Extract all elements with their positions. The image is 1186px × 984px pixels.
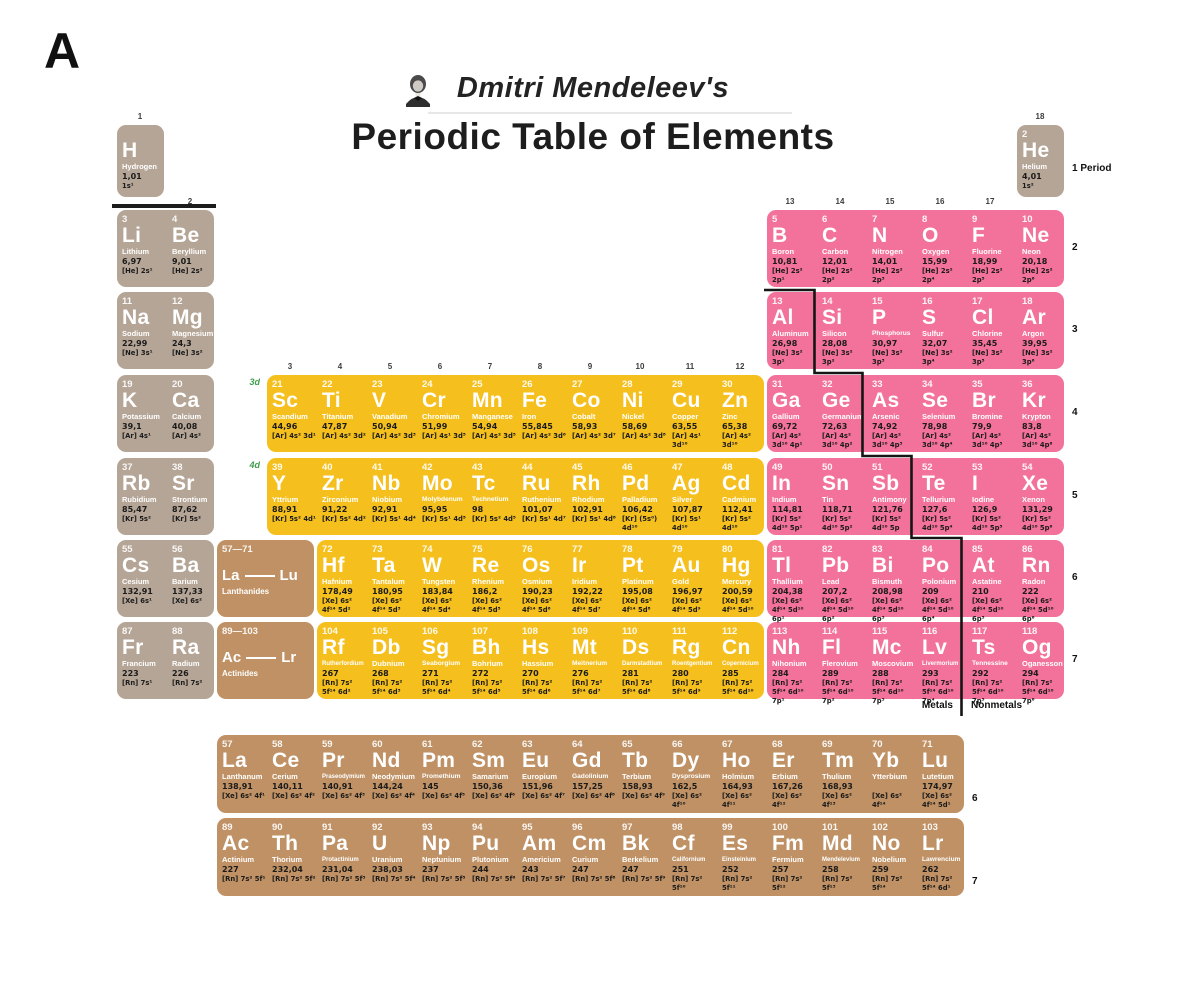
element-cell-p: 15PPhosphorus30,97[Ne] 3s² 3p³ xyxy=(865,292,915,369)
atomic-mass: 1,01 xyxy=(122,172,165,182)
element-symbol: Hf xyxy=(322,555,365,577)
atomic-mass: 252 xyxy=(722,865,765,875)
element-symbol: Rh xyxy=(572,473,615,495)
element-cell-fm: 100FmFermium257[Rn] 7s² 5f¹² xyxy=(765,818,815,895)
element-symbol: As xyxy=(872,390,915,412)
electron-config: [Xe] 6s² 4f¹⁴ 5d¹⁰ 6p⁶ xyxy=(1022,597,1066,624)
atomic-mass: 247 xyxy=(622,865,665,875)
element-symbol: Tb xyxy=(622,750,665,772)
atomic-mass: 285 xyxy=(722,669,765,679)
electron-config: [Xe] 6s² 4f² xyxy=(272,792,316,801)
nonmetals-label: Nonmetals xyxy=(971,700,1022,711)
element-cell-sb: 51SbAntimony121,76[Kr] 5s² 4d¹⁰ 5p xyxy=(865,458,915,535)
element-cell-tm: 69TmThulium168,93[Xe] 6s² 4f¹³ xyxy=(815,735,865,812)
electron-config: [Xe] 6s² 4f¹⁴ 5d⁷ xyxy=(572,597,616,615)
group-label-6: 6 xyxy=(415,362,465,371)
atomic-mass: 209 xyxy=(922,587,965,597)
element-name: Boron xyxy=(772,247,815,257)
element-symbol: Dy xyxy=(672,750,715,772)
element-symbol: At xyxy=(972,555,1015,577)
element-symbol: Ir xyxy=(572,555,615,577)
element-symbol: Cm xyxy=(572,833,615,855)
element-name: Tennessine xyxy=(972,659,1015,669)
element-name: Rubidium xyxy=(122,495,165,505)
element-cell-ne: 10NeNeon20,18[He] 2s² 2p⁶ xyxy=(1015,210,1065,287)
atomic-mass: 87,62 xyxy=(172,505,215,515)
element-symbol: H xyxy=(122,140,165,162)
atomic-mass: 39,1 xyxy=(122,422,165,432)
element-name: Moscovium xyxy=(872,659,915,669)
series-placeholder-actinides: 89—103AcLrActinides xyxy=(215,622,315,699)
electron-config: [Rn] 7s² 5f¹⁴ 6d¹⁰ 7p⁶ xyxy=(1022,679,1066,706)
atomic-mass: 98 xyxy=(472,505,515,515)
element-symbol: Er xyxy=(772,750,815,772)
element-symbol: Nd xyxy=(372,750,415,772)
atomic-mass: 28,08 xyxy=(822,339,865,349)
electron-config: [Xe] 6s² 4f¹⁴ 5d¹⁰ xyxy=(722,597,766,615)
element-cell-ni: 28NiNickel58,69[Ar] 4s² 3d⁸ xyxy=(615,375,665,452)
electron-config: [Kr] 5s² 4d¹⁰ 5p⁵ xyxy=(972,515,1016,533)
atomic-mass: 243 xyxy=(522,865,565,875)
element-cell-b: 5BBoron10,81[He] 2s² 2p¹ xyxy=(765,210,815,287)
element-name: Ytterbium xyxy=(872,772,915,782)
element-name: Oganesson xyxy=(1022,659,1065,669)
element-cell-ru: 44RuRuthenium101,07[Kr] 5s¹ 4d⁷ xyxy=(515,458,565,535)
element-name: Scandium xyxy=(272,412,315,422)
element-name: Dubnium xyxy=(372,659,415,669)
element-cell-ga: 31GaGallium69,72[Ar] 4s² 3d¹⁰ 4p¹ xyxy=(765,375,815,452)
electron-config: [Ne] 3s² 3p² xyxy=(822,349,866,367)
element-name: Calcium xyxy=(172,412,215,422)
atomic-mass: 63,55 xyxy=(672,422,715,432)
electron-config: [Rn] 7s² 5f¹² xyxy=(772,875,816,893)
atomic-mass: 20,18 xyxy=(1022,257,1065,267)
electron-config: [Xe] 6s² 4f¹¹ xyxy=(722,792,766,810)
element-name: Lawrencium xyxy=(922,855,965,865)
group-label-8: 8 xyxy=(515,362,565,371)
electron-config: [Rn] 7s² 5f¹⁴ 6d⁷ xyxy=(572,679,616,697)
element-name: Lead xyxy=(822,577,865,587)
group-label-7: 7 xyxy=(465,362,515,371)
atomic-mass: 126,9 xyxy=(972,505,1015,515)
element-symbol: Db xyxy=(372,637,415,659)
element-name: Sulfur xyxy=(922,329,965,339)
series-range: 89—103 xyxy=(222,626,315,637)
element-name: Radium xyxy=(172,659,215,669)
element-name: Astatine xyxy=(972,577,1015,587)
group-label-4: 4 xyxy=(315,362,365,371)
group-label-15: 15 xyxy=(865,197,915,206)
element-cell-v: 23VVanadium50,94[Ar] 4s² 3d³ xyxy=(365,375,415,452)
atomic-mass: 190,23 xyxy=(522,587,565,597)
atomic-mass: 167,26 xyxy=(772,782,815,792)
element-cell-xe: 54XeXenon131,29[Kr] 5s² 4d¹⁰ 5p⁶ xyxy=(1015,458,1065,535)
element-symbol: Te xyxy=(922,473,965,495)
element-symbol: Lu xyxy=(922,750,965,772)
atomic-mass: 39,95 xyxy=(1022,339,1065,349)
element-name: Tellurium xyxy=(922,495,965,505)
element-symbol: Be xyxy=(172,225,215,247)
element-name: Protactinium xyxy=(322,855,365,865)
atomic-mass: 14,01 xyxy=(872,257,915,267)
element-name: Iridium xyxy=(572,577,615,587)
atomic-mass: 200,59 xyxy=(722,587,765,597)
lanthanide-row-period-label: 6 xyxy=(972,793,978,804)
atomic-mass: 195,08 xyxy=(622,587,665,597)
element-cell-se: 34SeSelenium78,98[Ar] 4s² 3d¹⁰ 4p⁴ xyxy=(915,375,965,452)
electron-config: [Xe] 6s² 4f¹² xyxy=(772,792,816,810)
element-cell-rn: 86RnRadon222[Xe] 6s² 4f¹⁴ 5d¹⁰ 6p⁶ xyxy=(1015,540,1065,617)
electron-config: [Kr] 5s² 4d² xyxy=(322,515,366,524)
element-name: Francium xyxy=(122,659,165,669)
period-label-2: 2 xyxy=(1072,242,1078,253)
electron-config: [Ar] 4s² 3d² xyxy=(322,432,366,441)
element-symbol: Lv xyxy=(922,637,965,659)
element-name: Lanthanum xyxy=(222,772,265,782)
element-symbol: U xyxy=(372,833,415,855)
element-symbol: Tm xyxy=(822,750,865,772)
element-symbol: Pu xyxy=(472,833,515,855)
element-name: Thulium xyxy=(822,772,865,782)
atomic-mass: 26,98 xyxy=(772,339,815,349)
element-name: Thallium xyxy=(772,577,815,587)
series-symbols: LaLu xyxy=(222,567,315,584)
element-symbol: Mc xyxy=(872,637,915,659)
electron-config: [Rn] 7s² 5f¹⁴ 6d⁶ xyxy=(522,679,566,697)
element-name: Einsteinium xyxy=(722,855,765,865)
element-name: Americium xyxy=(522,855,565,865)
atomic-mass xyxy=(872,782,915,792)
electron-config: [Ar] 4s¹ 3d⁵ xyxy=(422,432,466,441)
element-symbol: Pr xyxy=(322,750,365,772)
element-cell-n: 7NNitrogen14,01[He] 2s² 2p³ xyxy=(865,210,915,287)
element-symbol: Co xyxy=(572,390,615,412)
atomic-mass: 180,95 xyxy=(372,587,415,597)
element-name: Meitnerium xyxy=(572,659,615,669)
atomic-mass: 131,29 xyxy=(1022,505,1065,515)
element-name: Antimony xyxy=(872,495,915,505)
element-symbol: Sb xyxy=(872,473,915,495)
electron-config: [Rn] 7s² 5f¹⁴ 6d¹⁰ 7p¹ xyxy=(772,679,816,706)
group-label-1: 1 xyxy=(115,112,165,121)
electron-config: [Ar] 4s² 3d¹⁰ 4p⁴ xyxy=(922,432,966,450)
series-to: Lr xyxy=(281,649,296,666)
electron-config: [Ne] 3s² xyxy=(172,349,216,358)
element-symbol: Ta xyxy=(372,555,415,577)
actinide-row-period-label: 7 xyxy=(972,876,978,887)
electron-config: [Rn] 7s¹ xyxy=(122,679,166,688)
element-cell-cd: 48CdCadmium112,41[Kr] 5s² 4d¹⁰ xyxy=(715,458,765,535)
electron-config: [He] 2s² 2p¹ xyxy=(772,267,816,285)
atomic-mass: 79,9 xyxy=(972,422,1015,432)
period-label-1: 1 Period xyxy=(1072,163,1111,174)
electron-config: [Xe] 6s² 4f¹⁰ xyxy=(672,792,716,810)
element-name: Copernicium xyxy=(722,659,765,669)
atomic-mass: 74,92 xyxy=(872,422,915,432)
atomic-mass: 150,36 xyxy=(472,782,515,792)
period-label-3: 3 xyxy=(1072,324,1078,335)
element-cell-ds: 110DsDarmstadtium281[Rn] 7s² 5f¹⁴ 6d⁸ xyxy=(615,622,665,699)
element-name: Nitrogen xyxy=(872,247,915,257)
atomic-mass: 127,6 xyxy=(922,505,965,515)
element-cell-au: 79AuGold196,97[Xe] 6s² 4f¹⁴ 5d⁹ xyxy=(665,540,715,617)
atomic-mass: 284 xyxy=(772,669,815,679)
element-name: Yttrium xyxy=(272,495,315,505)
electron-config: 1s² xyxy=(1022,182,1066,191)
atomic-mass: 294 xyxy=(1022,669,1065,679)
element-name: Phosphorus xyxy=(872,329,915,339)
element-name: Sodium xyxy=(122,329,165,339)
atomic-mass: 244 xyxy=(472,865,515,875)
electron-config: [Rn] 7s² 5f¹⁴ 6d⁴ xyxy=(422,679,466,697)
element-cell-zn: 30ZnZinc65,38[Ar] 4s² 3d¹⁰ xyxy=(715,375,765,452)
element-name: Cerium xyxy=(272,772,315,782)
element-symbol: La xyxy=(222,750,265,772)
electron-config: [Rn] 7s² 5f¹³ xyxy=(822,875,866,893)
electron-config: [Ar] 4s² 3d¹⁰ 4p⁵ xyxy=(972,432,1016,450)
atomic-number: 53 xyxy=(972,462,1015,473)
electron-config: [Rn] 7s² 5f¹⁴ 6d⁵ xyxy=(472,679,516,697)
element-name: Thorium xyxy=(272,855,315,865)
element-name: Iron xyxy=(522,412,565,422)
element-cell-hs: 108HsHassium270[Rn] 7s² 5f¹⁴ 6d⁶ xyxy=(515,622,565,699)
element-cell-fl: 114FlFlerovium289[Rn] 7s² 5f¹⁴ 6d¹⁰ 7p² xyxy=(815,622,865,699)
element-name: Nihonium xyxy=(772,659,815,669)
element-cell-cn: 112CnCopernicium285[Rn] 7s² 5f¹⁴ 6d¹⁰ xyxy=(715,622,765,699)
subshell-annotation-3d: 3d xyxy=(240,377,260,387)
element-cell-re: 75ReRhenium186,2[Xe] 6s² 4f¹⁴ 5d⁵ xyxy=(465,540,515,617)
element-cell-rf: 104RfRutherfordium267[Rn] 7s² 5f¹⁴ 6d² xyxy=(315,622,365,699)
electron-config: [Ne] 3s² 3p⁵ xyxy=(972,349,1016,367)
series-label: Actinides xyxy=(222,669,315,678)
electron-config: [Xe] 6s² 4f¹⁴ 5d⁵ xyxy=(472,597,516,615)
element-symbol: S xyxy=(922,307,965,329)
electron-config: [Ne] 3s¹ xyxy=(122,349,166,358)
element-cell-nd: 60NdNeodymium144,24[Xe] 6s² 4f⁴ xyxy=(365,735,415,812)
element-symbol: Sn xyxy=(822,473,865,495)
atomic-mass: 280 xyxy=(672,669,715,679)
element-symbol: Ge xyxy=(822,390,865,412)
atomic-mass: 137,33 xyxy=(172,587,215,597)
element-cell-be: 4BeBeryllium9,01[He] 2s² xyxy=(165,210,215,287)
element-cell-cl: 17ClChlorine35,45[Ne] 3s² 3p⁵ xyxy=(965,292,1015,369)
element-symbol: Fl xyxy=(822,637,865,659)
element-symbol: Yb xyxy=(872,750,915,772)
electron-config: [Ar] 4s² 3d¹⁰ 4p¹ xyxy=(772,432,816,450)
element-symbol: Fr xyxy=(122,637,165,659)
electron-config: [Xe] 6s² 4f¹⁴ 5d⁹ xyxy=(672,597,716,615)
element-name: Zinc xyxy=(722,412,765,422)
electron-config: [Ar] 4s² 3d⁵ xyxy=(472,432,516,441)
electron-config: [Xe] 6s² 4f¹⁴ 5d⁴ xyxy=(422,597,466,615)
metals-label: Metals xyxy=(860,700,953,711)
element-name: Argon xyxy=(1022,329,1065,339)
element-name: Beryllium xyxy=(172,247,215,257)
element-name: Radon xyxy=(1022,577,1065,587)
electron-config: [Ar] 4s² 3d⁶ xyxy=(522,432,566,441)
electron-config: [Ne] 3s² 3p³ xyxy=(872,349,916,367)
element-cell-bk: 97BkBerkelium247[Rn] 7s² 5f⁹ xyxy=(615,818,665,895)
electron-config: [Xe] 6s² 4f¹⁴ 5d¹⁰ 6p¹ xyxy=(772,597,816,624)
element-symbol: Bh xyxy=(472,637,515,659)
group-label-3: 3 xyxy=(265,362,315,371)
electron-config: [Ar] 4s² xyxy=(172,432,216,441)
electron-config: [Rn] 7s² 5f¹¹ xyxy=(722,875,766,893)
element-cell-pt: 78PtPlatinum195,08[Xe] 6s² 4f¹⁴ 5d⁸ xyxy=(615,540,665,617)
atomic-mass: 196,97 xyxy=(672,587,715,597)
element-name: Carbon xyxy=(822,247,865,257)
atomic-mass: 262 xyxy=(922,865,965,875)
group-label-16: 16 xyxy=(915,197,965,206)
element-cell-ag: 47AgSilver107,87[Kr] 5s¹ 4d¹⁰ xyxy=(665,458,715,535)
element-symbol: Es xyxy=(722,833,765,855)
element-cell-tb: 65TbTerbium158,93[Xe] 6s² 4f⁹ xyxy=(615,735,665,812)
element-name: Plutonium xyxy=(472,855,515,865)
element-symbol: Rf xyxy=(322,637,365,659)
series-from: La xyxy=(222,567,240,584)
element-name: Strontium xyxy=(172,495,215,505)
electron-config: [Kr] 5s² 4d¹⁰ 5p¹ xyxy=(772,515,816,533)
atomic-mass: 106,42 xyxy=(622,505,665,515)
element-symbol: Mt xyxy=(572,637,615,659)
atomic-mass: 271 xyxy=(422,669,465,679)
poster-byline: Dmitri Mendeleev's xyxy=(0,72,1186,105)
element-cell-ca: 20CaCalcium40,08[Ar] 4s² xyxy=(165,375,215,452)
element-cell-sr: 38SrStrontium87,62[Kr] 5s² xyxy=(165,458,215,535)
atomic-mass: 232,04 xyxy=(272,865,315,875)
element-cell-he: 2HeHelium4,011s² xyxy=(1015,125,1065,202)
element-symbol: Rb xyxy=(122,473,165,495)
element-cell-rg: 111RgRoentgentium280[Rn] 7s² 5f¹⁴ 6d⁹ xyxy=(665,622,715,699)
atomic-mass: 132,91 xyxy=(122,587,165,597)
electron-config: [Ar] 4s² 3d¹ xyxy=(272,432,316,441)
period-label-7: 7 xyxy=(1072,654,1078,665)
element-symbol: Ce xyxy=(272,750,315,772)
atomic-mass: 15,99 xyxy=(922,257,965,267)
electron-config: [Kr] 5s² 4d¹ xyxy=(272,515,316,524)
electron-config: [Kr] 5s² xyxy=(172,515,216,524)
element-cell-ta: 73TaTantalum180,95[Xe] 6s² 4f¹⁴ 5d³ xyxy=(365,540,415,617)
element-cell-db: 105DbDubnium268[Rn] 7s² 5f¹⁴ 6d³ xyxy=(365,622,415,699)
element-symbol: Pt xyxy=(622,555,665,577)
element-cell-tc: 43TcTechnetium98[Kr] 5s² 4d⁵ xyxy=(465,458,515,535)
electron-config: [Kr] (5s⁰) 4d¹⁰ xyxy=(622,515,666,533)
electron-config: [Ne] 3s² 3p¹ xyxy=(772,349,816,367)
element-cell-po: 84PoPolonium209[Xe] 6s² 4f¹⁴ 5d¹⁰ 6p⁴ xyxy=(915,540,965,617)
electron-config: [Xe] 6s² 4f¹⁴ xyxy=(872,792,916,810)
element-cell-pr: 59PrPraseodymium140,91[Xe] 6s² 4f³ xyxy=(315,735,365,812)
element-name: Terbium xyxy=(622,772,665,782)
element-symbol: Y xyxy=(272,473,315,495)
group-label-13: 13 xyxy=(765,197,815,206)
element-symbol: Zr xyxy=(322,473,365,495)
element-symbol: Ga xyxy=(772,390,815,412)
atomic-mass: 10,81 xyxy=(772,257,815,267)
electron-config: [Rn] 7s² 5f¹⁰ xyxy=(672,875,716,893)
element-symbol: Gd xyxy=(572,750,615,772)
element-cell-as: 33AsArsenic74,92[Ar] 4s² 3d¹⁰ 4p³ xyxy=(865,375,915,452)
element-name: Chromium xyxy=(422,412,465,422)
atomic-mass: 9,01 xyxy=(172,257,215,267)
element-name: Hafnium xyxy=(322,577,365,587)
electron-config: [Rn] 7s² 5f⁸ xyxy=(572,875,616,884)
atomic-mass: 121,76 xyxy=(872,505,915,515)
electron-config: 1s¹ xyxy=(122,182,166,191)
element-symbol: Fm xyxy=(772,833,815,855)
element-symbol: Ag xyxy=(672,473,715,495)
element-cell-ac: 89AcActinium227[Rn] 7s² 5f¹ xyxy=(215,818,265,895)
element-cell-rb: 37RbRubidium85,47[Kr] 5s² xyxy=(115,458,165,535)
element-cell-mo: 42MoMolybdenum95,95[Kr] 5s¹ 4d⁵ xyxy=(415,458,465,535)
period-label-5: 5 xyxy=(1072,490,1078,501)
element-symbol: P xyxy=(872,307,915,329)
element-symbol: Kr xyxy=(1022,390,1065,412)
electron-config: [Ar] 4s² 3d¹⁰ 4p⁶ xyxy=(1022,432,1066,450)
element-cell-ho: 67HoHolmium164,93[Xe] 6s² 4f¹¹ xyxy=(715,735,765,812)
element-cell-in: 49InIndium114,81[Kr] 5s² 4d¹⁰ 5p¹ xyxy=(765,458,815,535)
element-name: Erbium xyxy=(772,772,815,782)
atomic-mass: 186,2 xyxy=(472,587,515,597)
element-cell-cu: 29CuCopper63,55[Ar] 4s¹ 3d¹⁰ xyxy=(665,375,715,452)
element-name: Zirconium xyxy=(322,495,365,505)
atomic-mass: 78,98 xyxy=(922,422,965,432)
element-name: Hassium xyxy=(522,659,565,669)
electron-config: [He] 2s² 2p⁵ xyxy=(972,267,1016,285)
series-from: Ac xyxy=(222,649,241,666)
element-name: Lithium xyxy=(122,247,165,257)
element-symbol: F xyxy=(972,225,1015,247)
atomic-mass: 51,99 xyxy=(422,422,465,432)
electron-config: [Ar] 4s² 3d⁷ xyxy=(572,432,616,441)
atomic-mass: 85,47 xyxy=(122,505,165,515)
element-name: Rhodium xyxy=(572,495,615,505)
electron-config: [Rn] 7s² 5f⁴ xyxy=(372,875,416,884)
period-label-4: 4 xyxy=(1072,407,1078,418)
electron-config: [Xe] 6s² 4f³ xyxy=(322,792,366,801)
element-name: Tantalum xyxy=(372,577,415,587)
element-cell-lu: 71LuLutetium174,97[Xe] 6s² 4f¹⁴ 5d¹ xyxy=(915,735,965,812)
element-name: Gold xyxy=(672,577,715,587)
electron-config: [Kr] 5s² 4d⁵ xyxy=(472,515,516,524)
element-name: Platinum xyxy=(622,577,665,587)
atomic-mass: 107,87 xyxy=(672,505,715,515)
element-cell-br: 35BrBromine79,9[Ar] 4s² 3d¹⁰ 4p⁵ xyxy=(965,375,1015,452)
element-symbol: Ra xyxy=(172,637,215,659)
element-name: Darmstadtium xyxy=(622,659,665,669)
element-cell-md: 101MdMendelevium258[Rn] 7s² 5f¹³ xyxy=(815,818,865,895)
atomic-mass: 222 xyxy=(1022,587,1065,597)
element-cell-cm: 96CmCurium247[Rn] 7s² 5f⁸ xyxy=(565,818,615,895)
electron-config: [Kr] 5s¹ 4d⁵ xyxy=(422,515,466,524)
element-name: Silicon xyxy=(822,329,865,339)
element-symbol: Hg xyxy=(722,555,765,577)
element-name: Vanadium xyxy=(372,412,415,422)
atomic-mass: 247 xyxy=(572,865,615,875)
electron-config: [Ar] 4s² 3d⁸ xyxy=(622,432,666,441)
element-name: Samarium xyxy=(472,772,515,782)
element-cell-na: 11NaSodium22,99[Ne] 3s¹ xyxy=(115,292,165,369)
group-label-5: 5 xyxy=(365,362,415,371)
atomic-mass: 83,8 xyxy=(1022,422,1065,432)
atomic-mass: 293 xyxy=(922,669,965,679)
electron-config: [Xe] 6s² 4f⁵ xyxy=(422,792,466,801)
element-name: Californium xyxy=(672,855,715,865)
electron-config: [Xe] 6s² 4f⁷ xyxy=(522,792,566,801)
electron-config: [Ne] 3s² 3p⁶ xyxy=(1022,349,1066,367)
atomic-mass: 231,04 xyxy=(322,865,365,875)
element-symbol: Eu xyxy=(522,750,565,772)
element-cell-th: 90ThThorium232,04[Rn] 7s² 5f² xyxy=(265,818,315,895)
